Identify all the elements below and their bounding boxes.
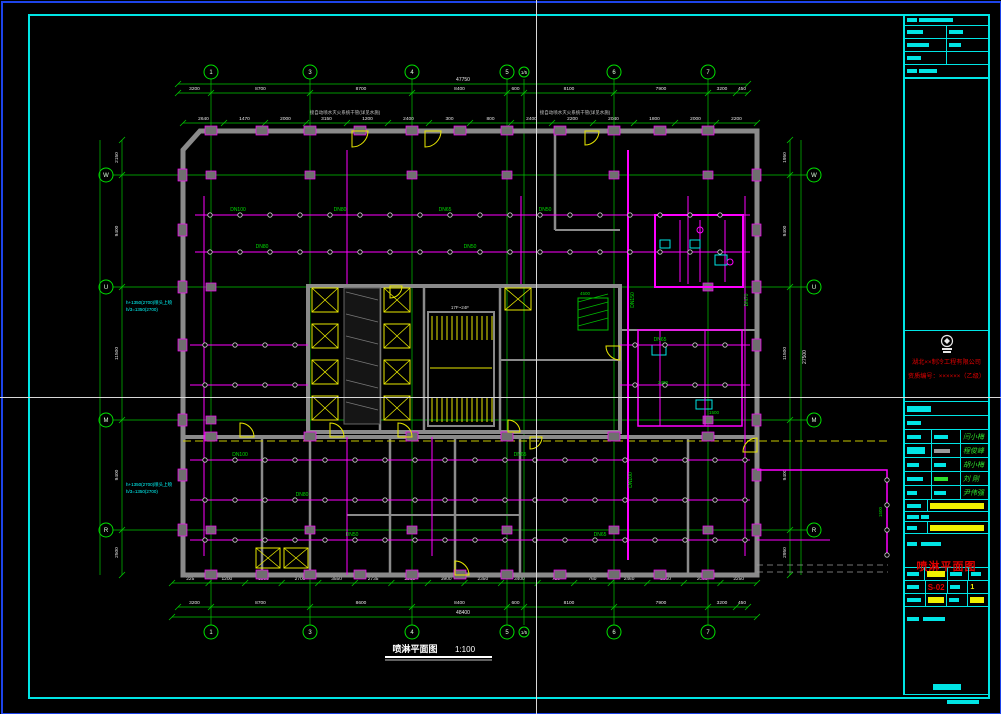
svg-text:6: 6 xyxy=(612,630,616,636)
svg-text:U: U xyxy=(104,285,108,291)
svg-text:R: R xyxy=(812,528,817,534)
svg-text:h+1350(2700)喷头上喷: h+1350(2700)喷头上喷 xyxy=(126,481,173,488)
titleblock-date-bars xyxy=(905,500,988,534)
svg-text:接自动喷水灭火系统干管(详见水施): 接自动喷水灭火系统干管(详见水施) xyxy=(540,109,611,116)
svg-text:5: 5 xyxy=(505,70,509,76)
drawing-canvas[interactable]: 113344551/51/56677WWUUMMRR47750320087008… xyxy=(0,0,1001,714)
svg-text:W: W xyxy=(811,173,817,179)
svg-text:11500: 11500 xyxy=(114,347,120,360)
svg-text:喷淋平面图: 喷淋平面图 xyxy=(392,643,437,654)
svg-text:M: M xyxy=(104,418,109,424)
columns xyxy=(178,126,761,579)
svg-text:M: M xyxy=(812,418,817,424)
svg-text:6: 6 xyxy=(612,70,616,76)
svg-text:600: 600 xyxy=(511,600,519,606)
svg-text:2500: 2500 xyxy=(114,547,120,558)
svg-text:9400: 9400 xyxy=(114,469,120,480)
svg-text:2000: 2000 xyxy=(690,116,701,122)
svg-text:2200: 2200 xyxy=(731,116,742,122)
company-license: 资质编号：××××××（乙级） xyxy=(907,373,986,381)
svg-text:1: 1 xyxy=(209,70,213,76)
svg-text:1/5: 1/5 xyxy=(521,630,528,635)
svg-text:7: 7 xyxy=(706,630,710,636)
title-block: 湖北××制冷工程有限公司 资质编号：××××××（乙级） 闫小梅 程俊峰 胡小梅 xyxy=(903,14,988,695)
signature-name: 胡小梅 xyxy=(963,460,984,470)
svg-text:450: 450 xyxy=(738,86,746,92)
sheet-number: 1 xyxy=(970,584,974,591)
svg-text:DN80: DN80 xyxy=(296,492,309,498)
svg-text:DN70: DN70 xyxy=(744,293,750,306)
svg-text:2950: 2950 xyxy=(782,547,788,558)
svg-text:DN100: DN100 xyxy=(628,472,634,488)
svg-text:DN65: DN65 xyxy=(439,207,452,213)
svg-text:9400: 9400 xyxy=(782,469,788,480)
svg-text:3: 3 xyxy=(308,630,312,636)
titleblock-signatures: 闫小梅 程俊峰 胡小梅 刘 刚 尹伟强 xyxy=(905,402,988,500)
svg-text:3: 3 xyxy=(308,70,312,76)
svg-text:3200: 3200 xyxy=(717,600,728,606)
svg-text:4: 4 xyxy=(410,630,414,636)
signature-name: 程俊峰 xyxy=(963,446,984,456)
svg-text:3200: 3200 xyxy=(717,86,728,92)
svg-text:2640: 2640 xyxy=(198,116,209,122)
svg-text:DN65: DN65 xyxy=(594,532,607,538)
svg-text:DN150: DN150 xyxy=(630,292,636,308)
titleblock-info-table xyxy=(905,14,988,79)
svg-text:W: W xyxy=(103,173,109,179)
svg-text:DN50: DN50 xyxy=(346,532,359,538)
svg-text:DN50: DN50 xyxy=(539,207,552,213)
svg-text:3200: 3200 xyxy=(189,600,200,606)
svg-text:1950: 1950 xyxy=(782,152,788,163)
svg-text:48400: 48400 xyxy=(456,610,470,616)
svg-text:8700: 8700 xyxy=(356,86,367,92)
titleblock-drawing-title-box: 喷淋平面图 xyxy=(905,534,988,568)
svg-text:8100: 8100 xyxy=(564,86,575,92)
svg-text:2400: 2400 xyxy=(658,380,669,385)
svg-text:U: U xyxy=(812,285,816,291)
svg-text:R: R xyxy=(104,528,109,534)
svg-text:7: 7 xyxy=(706,70,710,76)
svg-text:接自动喷水灭火系统干管(详见水施): 接自动喷水灭火系统干管(详见水施) xyxy=(310,109,381,116)
svg-text:7900: 7900 xyxy=(656,86,667,92)
svg-text:4500: 4500 xyxy=(580,291,591,296)
svg-text:h/3=1350(2700): h/3=1350(2700) xyxy=(126,307,158,312)
svg-text:9400: 9400 xyxy=(782,225,788,236)
svg-text:1200: 1200 xyxy=(362,116,373,122)
svg-text:1500: 1500 xyxy=(709,410,720,415)
company-name: 湖北××制冷工程有限公司 xyxy=(907,359,986,367)
svg-text:3150: 3150 xyxy=(321,116,332,122)
signature-name: 尹伟强 xyxy=(963,488,984,498)
svg-text:9400: 9400 xyxy=(114,225,120,236)
svg-text:5: 5 xyxy=(505,630,509,636)
crosshair-vertical xyxy=(536,0,537,714)
svg-text:47750: 47750 xyxy=(456,77,470,83)
svg-text:27500: 27500 xyxy=(802,350,808,364)
svg-text:DN100: DN100 xyxy=(232,452,248,458)
svg-text:17F~24F: 17F~24F xyxy=(451,305,469,310)
svg-text:7900: 7900 xyxy=(656,600,667,606)
svg-text:8600: 8600 xyxy=(356,600,367,606)
status-tag xyxy=(947,700,979,704)
svg-text:h/3=1350(2700): h/3=1350(2700) xyxy=(126,489,158,494)
drawing-label: 喷淋平面图1:100 xyxy=(385,643,492,660)
svg-text:600: 600 xyxy=(511,86,519,92)
svg-text:DN65: DN65 xyxy=(514,452,527,458)
svg-text:800: 800 xyxy=(486,116,494,122)
svg-text:DN80: DN80 xyxy=(334,207,347,213)
svg-text:2400: 2400 xyxy=(403,116,414,122)
doors xyxy=(240,131,757,575)
drawing-number: S-02 xyxy=(928,583,945,592)
svg-text:8700: 8700 xyxy=(255,86,266,92)
signature-name: 闫小梅 xyxy=(963,432,984,442)
svg-text:DN100: DN100 xyxy=(230,207,246,213)
svg-text:DN80: DN80 xyxy=(256,244,269,250)
svg-text:DN50: DN50 xyxy=(464,244,477,250)
svg-text:3200: 3200 xyxy=(189,86,200,92)
svg-text:DN65: DN65 xyxy=(654,337,667,343)
svg-text:2000: 2000 xyxy=(280,116,291,122)
svg-text:8700: 8700 xyxy=(255,600,266,606)
svg-text:1500: 1500 xyxy=(878,506,883,517)
axis-grid: 113344551/51/56677WWUUMMRR xyxy=(99,65,821,639)
svg-text:1470: 1470 xyxy=(239,116,250,122)
titleblock-company: 湖北××制冷工程有限公司 资质编号：××××××（乙级） xyxy=(905,330,988,402)
svg-text:8400: 8400 xyxy=(454,600,465,606)
svg-text:2150: 2150 xyxy=(114,152,120,163)
svg-text:8400: 8400 xyxy=(454,86,465,92)
svg-text:1800: 1800 xyxy=(649,116,660,122)
svg-text:8100: 8100 xyxy=(564,600,575,606)
crosshair-horizontal xyxy=(0,397,1001,398)
svg-text:11500: 11500 xyxy=(782,347,788,360)
svg-text:2200: 2200 xyxy=(567,116,578,122)
svg-text:h+1350(2700)喷头上喷: h+1350(2700)喷头上喷 xyxy=(126,299,173,306)
svg-text:1: 1 xyxy=(209,630,213,636)
svg-text:300: 300 xyxy=(445,116,453,122)
svg-text:1:100: 1:100 xyxy=(455,645,476,654)
svg-text:2040: 2040 xyxy=(608,116,619,122)
svg-text:4: 4 xyxy=(410,70,414,76)
titleblock-number-table: S-02 1 xyxy=(905,568,988,607)
signature-name: 刘 刚 xyxy=(963,474,979,484)
svg-text:1/5: 1/5 xyxy=(521,70,528,75)
cad-application-window: 113344551/51/56677WWUUMMRR47750320087008… xyxy=(0,0,1001,714)
svg-text:450: 450 xyxy=(738,600,746,606)
company-logo-icon xyxy=(939,334,955,354)
